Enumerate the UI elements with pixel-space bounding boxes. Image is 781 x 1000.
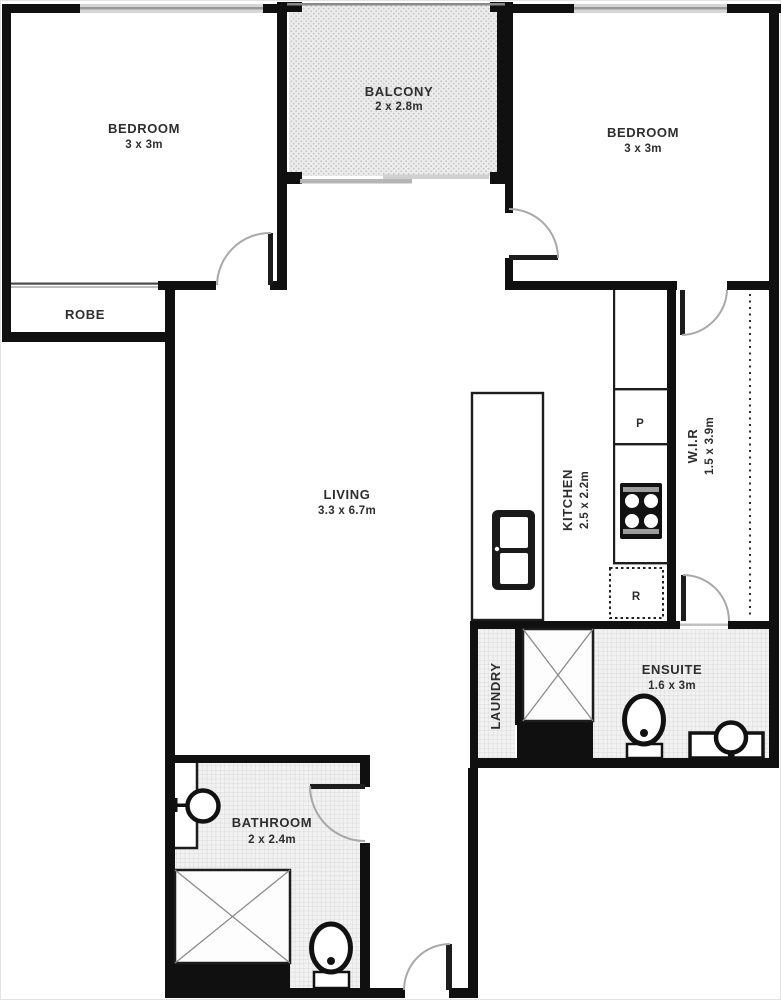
ensuite-name: ENSUITE: [642, 662, 703, 677]
bedroom-left-name: BEDROOM: [108, 121, 180, 136]
living-name: LIVING: [324, 487, 371, 502]
floorplan-page: BEDROOM 3 x 3m BEDROOM 3 x 3m BALCONY 2 …: [0, 0, 781, 1000]
window-bedroom-left-line: [80, 7, 263, 10]
floorplan-drawing: BEDROOM 3 x 3m BEDROOM 3 x 3m BALCONY 2 …: [0, 0, 781, 1000]
bedroom-left-dims: 3 x 3m: [125, 139, 163, 151]
laundry-name: LAUNDRY: [488, 662, 503, 729]
kitchen-dims: 2.5 x 2.2m: [579, 471, 591, 529]
counter-end-line: [613, 562, 669, 564]
bathroom-dims: 2 x 2.4m: [248, 834, 296, 846]
bedroom-right-name: BEDROOM: [607, 125, 679, 140]
kitchen-sink-icon: [492, 510, 535, 590]
ensuite-door-threshold: [680, 624, 728, 627]
cooktop-icon: [620, 483, 662, 539]
living-dims: 3.3 x 6.7m: [318, 505, 376, 517]
balcony-name: BALCONY: [365, 84, 433, 99]
toilet-bathroom-icon: [312, 924, 351, 988]
balcony-dims: 2 x 2.8m: [375, 101, 423, 113]
bathroom-name: BATHROOM: [232, 815, 312, 830]
bedroom-right-dims: 3 x 3m: [624, 143, 662, 155]
toilet-ensuite-icon: [625, 696, 664, 758]
window-bedroom-right-line: [574, 7, 727, 10]
pantry-marker: P: [636, 418, 644, 430]
wir-name: W.I.R: [685, 429, 700, 464]
robe-slider-panel: [11, 286, 158, 288]
shower-ensuite-icon: [523, 629, 593, 721]
robe-slider-track: [11, 283, 158, 285]
pantry-bottom-line: [613, 443, 669, 445]
pantry-top-line: [613, 388, 669, 390]
fridge-marker: R: [632, 591, 641, 603]
shower-bathroom-icon: [175, 870, 290, 963]
kitchen-counter-front: [613, 290, 615, 564]
balcony-slider-panel-1: [300, 179, 412, 184]
balcony-rail: [287, 3, 505, 6]
kitchen-name: KITCHEN: [560, 469, 575, 531]
balcony-slider-panel-2: [383, 175, 489, 180]
ensuite-dims: 1.6 x 3m: [648, 680, 696, 692]
robe-name: ROBE: [65, 307, 105, 322]
wir-dims: 1.5 x 3.9m: [704, 417, 716, 475]
